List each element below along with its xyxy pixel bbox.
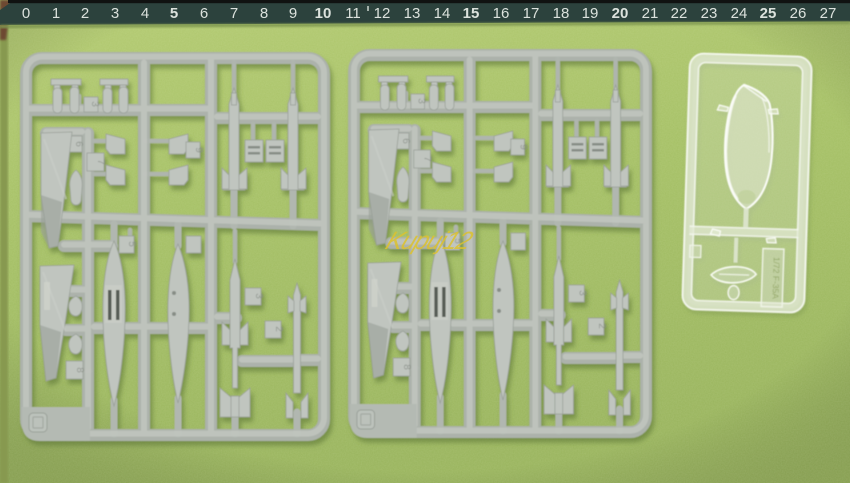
svg-text:2: 2 <box>81 5 89 22</box>
svg-text:23: 23 <box>701 5 718 22</box>
svg-text:3: 3 <box>89 101 100 107</box>
svg-text:0: 0 <box>22 5 30 22</box>
svg-text:9: 9 <box>193 147 204 153</box>
svg-text:4: 4 <box>141 5 149 22</box>
svg-text:2: 2 <box>273 326 284 332</box>
svg-text:19: 19 <box>582 5 599 22</box>
svg-text:6: 6 <box>200 5 208 22</box>
svg-text:11: 11 <box>345 5 361 22</box>
svg-text:3: 3 <box>253 293 264 299</box>
svg-text:18: 18 <box>553 5 570 22</box>
svg-text:16: 16 <box>493 5 510 22</box>
svg-text:17: 17 <box>523 5 540 22</box>
svg-text:27: 27 <box>820 5 837 22</box>
svg-text:8: 8 <box>74 367 85 373</box>
svg-text:1: 1 <box>52 5 60 22</box>
svg-text:Kupuj12: Kupuj12 <box>382 226 478 255</box>
svg-text:14: 14 <box>434 5 451 22</box>
svg-text:3: 3 <box>111 5 119 22</box>
svg-text:7: 7 <box>95 159 106 165</box>
svg-text:25: 25 <box>760 5 777 22</box>
svg-text:8: 8 <box>260 5 268 22</box>
svg-text:13: 13 <box>404 5 421 22</box>
svg-text:5: 5 <box>126 241 137 247</box>
svg-text:20: 20 <box>612 5 629 22</box>
svg-text:22: 22 <box>671 5 688 22</box>
svg-text:1/72 F-35A: 1/72 F-35A <box>770 257 781 300</box>
svg-text:24: 24 <box>731 5 748 22</box>
svg-text:15: 15 <box>463 5 480 22</box>
svg-text:6: 6 <box>73 141 84 147</box>
svg-text:7: 7 <box>230 5 238 22</box>
svg-text:26: 26 <box>790 5 807 22</box>
svg-text:12: 12 <box>374 5 391 22</box>
svg-text:5: 5 <box>170 5 178 22</box>
svg-text:21: 21 <box>642 5 659 22</box>
svg-text:10: 10 <box>315 5 332 22</box>
svg-text:9: 9 <box>289 5 297 22</box>
